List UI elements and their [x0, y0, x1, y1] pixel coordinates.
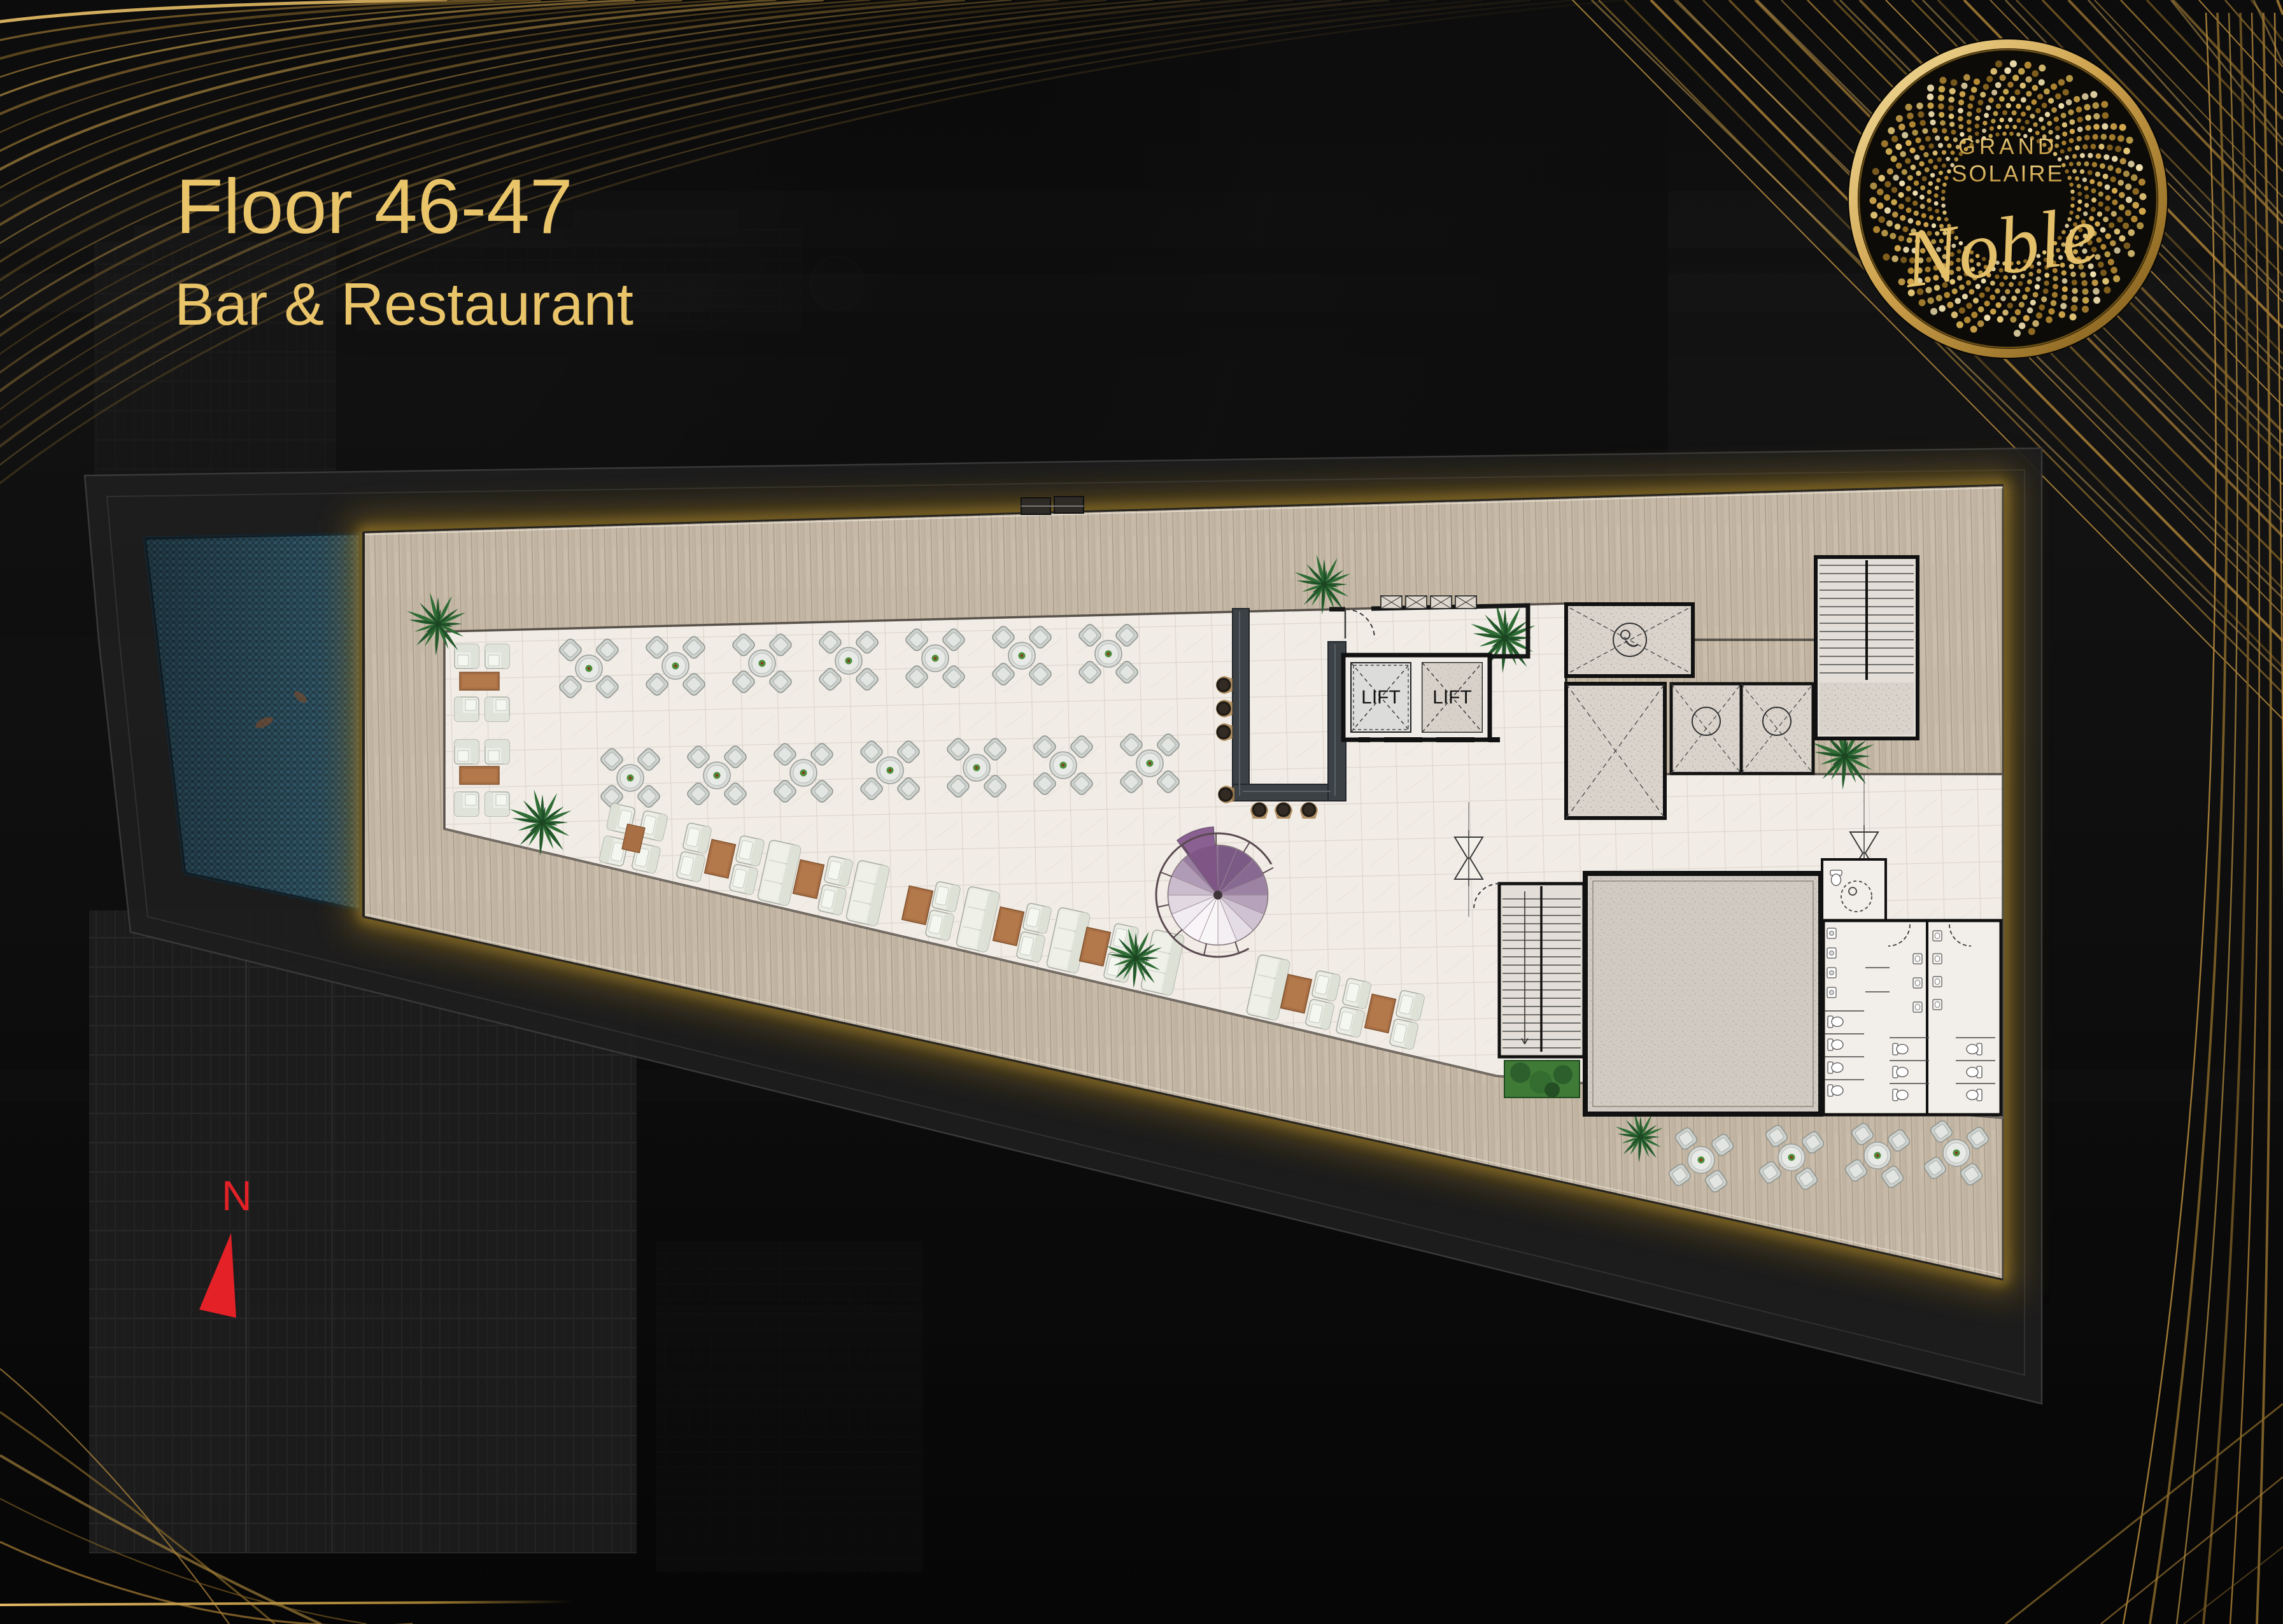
svg-text:GRAND: GRAND — [1958, 134, 2058, 159]
svg-text:Floor 46-47: Floor 46-47 — [176, 163, 573, 250]
svg-text:Bar & Restaurant: Bar & Restaurant — [174, 271, 633, 337]
svg-text:SOLAIRE: SOLAIRE — [1951, 160, 2064, 187]
svg-text:LIFT: LIFT — [1432, 687, 1472, 708]
svg-text:LIFT: LIFT — [1361, 687, 1401, 708]
svg-text:N: N — [222, 1172, 252, 1219]
